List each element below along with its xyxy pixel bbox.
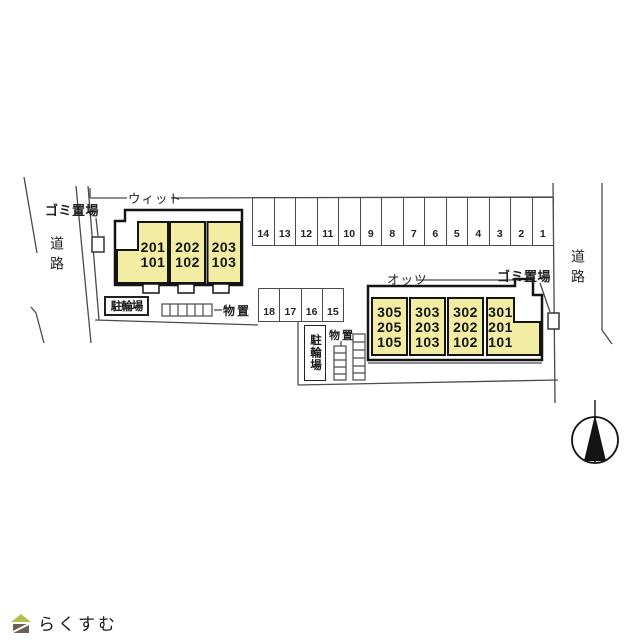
stall-number: 18 (263, 306, 275, 321)
parking-stall-12: 12 (295, 198, 317, 245)
storage-label-right: 物置 (329, 327, 355, 343)
parking-stall-4: 4 (467, 198, 489, 245)
parking-stall-15: 15 (322, 289, 343, 321)
garbage-bin-left (92, 237, 104, 252)
logo-text: らくすむ (38, 610, 118, 635)
stall-number: 15 (327, 306, 339, 321)
house-icon (10, 612, 32, 634)
stall-number: 1 (540, 228, 546, 245)
parking-stall-17: 17 (279, 289, 300, 321)
stall-number: 16 (306, 306, 318, 321)
stall-number: 4 (475, 228, 481, 245)
stall-number: 13 (279, 228, 291, 245)
building-otts-name: オッツ (387, 269, 428, 288)
stall-number: 2 (518, 228, 524, 245)
garbage-area-label-left: ゴミ置場 (45, 200, 99, 219)
otts-unit-4-rooms: 301 201 101 (486, 305, 515, 350)
rakusumu-logo: らくすむ (10, 610, 118, 635)
bicycle-parking-right: 駐輪場 (304, 325, 326, 381)
parking-row-top: 14 13 12 11 10 9 8 7 6 5 4 3 2 1 (252, 197, 554, 246)
garbage-bin-right (548, 313, 559, 329)
parking-stall-11: 11 (317, 198, 339, 245)
stall-number: 8 (389, 228, 395, 245)
parking-stall-16: 16 (301, 289, 322, 321)
parking-stall-1: 1 (532, 198, 554, 245)
parking-stall-13: 13 (274, 198, 296, 245)
stall-number: 5 (454, 228, 460, 245)
wit-porch (213, 284, 229, 293)
parking-stall-9: 9 (360, 198, 382, 245)
stall-number: 10 (343, 228, 355, 245)
storage-label-left: 物置 (223, 302, 251, 319)
stall-number: 7 (411, 228, 417, 245)
site-plan: 14 13 12 11 10 9 8 7 6 5 4 3 2 1 18 17 1… (0, 0, 640, 640)
parking-stall-5: 5 (446, 198, 468, 245)
stall-number: 9 (368, 228, 374, 245)
otts-unit-3-rooms: 302 202 102 (449, 305, 482, 350)
parking-stall-2: 2 (510, 198, 532, 245)
stall-number: 14 (257, 228, 269, 245)
parking-stall-14: 14 (253, 198, 274, 245)
parking-stall-7: 7 (403, 198, 425, 245)
wit-porch (178, 284, 194, 293)
parking-stall-10: 10 (338, 198, 360, 245)
stall-number: 12 (300, 228, 312, 245)
garbage-area-label-right: ゴミ置場 (497, 266, 551, 285)
wit-unit-1-rooms: 201 101 (137, 240, 169, 270)
parking-stall-6: 6 (424, 198, 446, 245)
stall-number: 11 (322, 228, 333, 245)
bicycle-parking-left: 駐輪場 (104, 296, 149, 316)
stall-number: 17 (285, 306, 297, 321)
building-wit-name: ウィット (128, 188, 182, 207)
wit-unit-2-rooms: 202 102 (171, 240, 204, 270)
otts-unit-1-rooms: 305 205 105 (373, 305, 406, 350)
parking-stall-18: 18 (259, 289, 279, 321)
parking-row-mid: 18 17 16 15 (258, 288, 344, 322)
otts-unit-2-rooms: 303 203 103 (411, 305, 444, 350)
stall-number: 3 (497, 228, 503, 245)
parking-stall-8: 8 (381, 198, 403, 245)
wit-porch (143, 284, 159, 293)
stall-number: 6 (432, 228, 438, 245)
parking-stall-3: 3 (489, 198, 511, 245)
road-label-right: 道路 (568, 249, 588, 289)
north-arrow-icon (572, 400, 618, 463)
road-label-left: 道路 (47, 236, 67, 276)
wit-unit-3-rooms: 203 103 (208, 240, 240, 270)
storage-left-boxes (162, 304, 212, 316)
